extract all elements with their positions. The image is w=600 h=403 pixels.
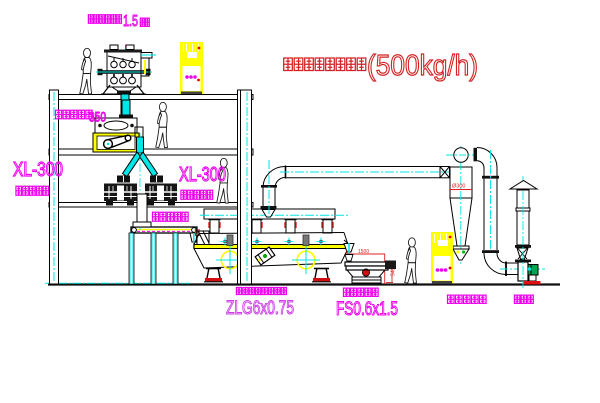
svg-text:FS0.6x1.5: FS0.6x1.5	[336, 299, 398, 320]
svg-text:350: 350	[89, 109, 106, 125]
svg-text:1.5: 1.5	[123, 13, 138, 30]
svg-text:XL-300: XL-300	[13, 159, 63, 181]
svg-text:1500: 1500	[358, 249, 369, 255]
svg-text:Ø300: Ø300	[452, 183, 465, 189]
svg-text:ZLG6x0.75: ZLG6x0.75	[226, 298, 294, 319]
svg-text:(500kg/h): (500kg/h)	[367, 50, 478, 82]
svg-text:XL-300: XL-300	[179, 164, 226, 186]
